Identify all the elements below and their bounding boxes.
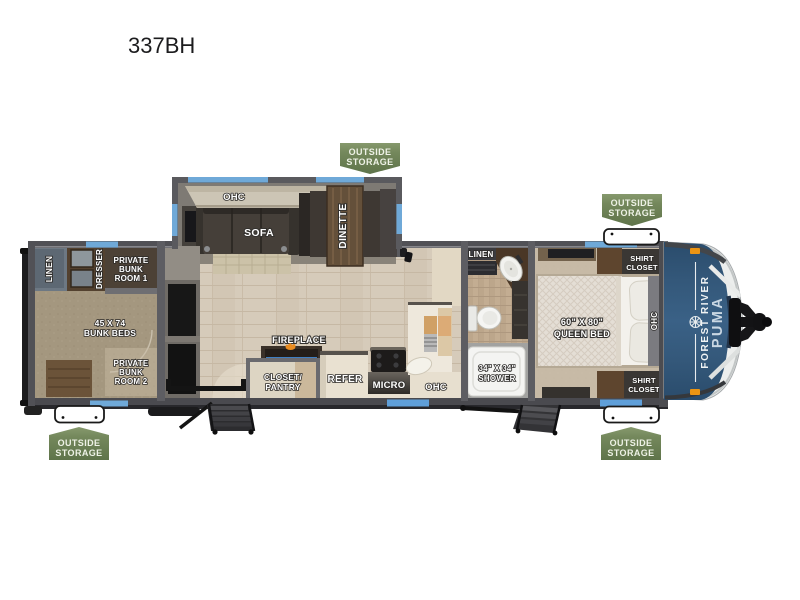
svg-text:CLOSET: CLOSET [628, 385, 660, 394]
svg-text:BUNK: BUNK [119, 265, 143, 274]
svg-text:60" X 80": 60" X 80" [561, 317, 603, 327]
svg-text:OUTSIDE: OUTSIDE [349, 147, 392, 157]
svg-text:ROOM 1: ROOM 1 [115, 274, 148, 283]
svg-text:STORAGE: STORAGE [607, 448, 654, 458]
svg-text:LINEN: LINEN [44, 256, 54, 283]
svg-text:CLOSET/: CLOSET/ [264, 372, 303, 382]
svg-text:MICRO: MICRO [373, 380, 406, 391]
svg-text:DINETTE: DINETTE [338, 204, 349, 249]
svg-text:PRIVATE: PRIVATE [114, 359, 149, 368]
svg-text:OUTSIDE: OUTSIDE [610, 438, 653, 448]
svg-text:OHC: OHC [223, 192, 245, 203]
svg-text:BUNK: BUNK [119, 368, 143, 377]
svg-text:FIREPLACE: FIREPLACE [272, 335, 326, 345]
svg-text:REFER: REFER [328, 374, 363, 385]
svg-text:34" X 34": 34" X 34" [479, 364, 516, 373]
svg-text:SHOWER: SHOWER [478, 374, 515, 383]
svg-text:OHC: OHC [650, 312, 659, 330]
svg-text:ROOM 2: ROOM 2 [115, 377, 148, 386]
svg-text:45 X 74: 45 X 74 [95, 318, 126, 328]
svg-text:BUNK BEDS: BUNK BEDS [84, 328, 136, 338]
svg-text:SOFA: SOFA [244, 227, 274, 239]
svg-text:CLOSET: CLOSET [626, 263, 658, 272]
svg-text:LINEN: LINEN [469, 250, 494, 259]
svg-text:DRESSER: DRESSER [95, 249, 104, 289]
svg-text:OUTSIDE: OUTSIDE [611, 198, 654, 208]
svg-text:OUTSIDE: OUTSIDE [58, 438, 101, 448]
svg-text:PRIVATE: PRIVATE [114, 256, 149, 265]
svg-text:337BH: 337BH [128, 33, 195, 58]
svg-text:STORAGE: STORAGE [346, 157, 393, 167]
svg-text:STORAGE: STORAGE [55, 448, 102, 458]
svg-text:PANTRY: PANTRY [265, 382, 300, 392]
svg-text:PUMA: PUMA [710, 296, 726, 348]
svg-text:STORAGE: STORAGE [608, 208, 655, 218]
svg-text:SHIRT: SHIRT [632, 376, 656, 385]
svg-text:OHC: OHC [425, 382, 447, 393]
svg-text:QUEEN BED: QUEEN BED [554, 329, 610, 339]
svg-text:SHIRT: SHIRT [630, 254, 654, 263]
